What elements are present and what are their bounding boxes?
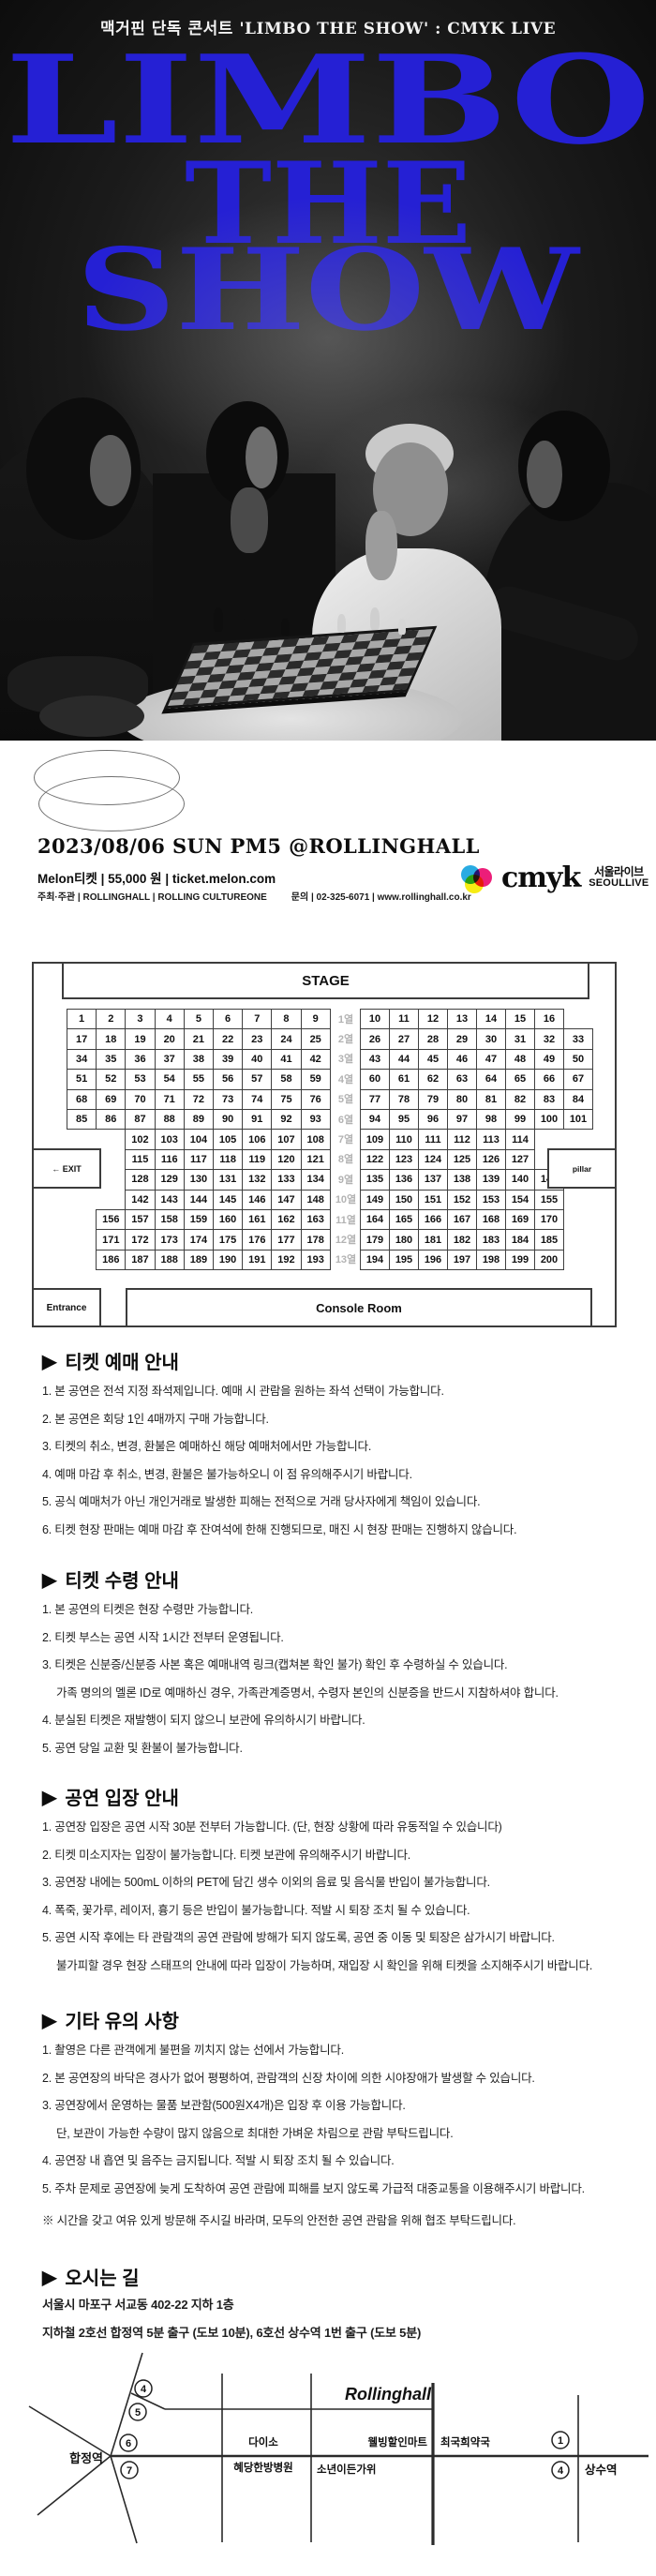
organizer-contact: 문의 | 02-325-6071 | www.rollinghall.co.kr [291, 889, 471, 903]
seat-83: 83 [534, 1089, 564, 1110]
seat-9: 9 [301, 1009, 331, 1029]
seat-19: 19 [125, 1028, 155, 1049]
section-line: 1. 공연장 입장은 공연 시작 30분 전부터 가능합니다. (단, 현장 상… [42, 1817, 502, 1835]
seat-124: 124 [418, 1149, 448, 1170]
seat-150: 150 [389, 1190, 419, 1210]
seat-1: 1 [67, 1009, 97, 1029]
seat-193: 193 [301, 1250, 331, 1270]
seat-42: 42 [301, 1049, 331, 1070]
seat-175: 175 [213, 1229, 243, 1250]
seat-180: 180 [389, 1229, 419, 1250]
chess-piece [398, 619, 406, 635]
seat-155: 155 [534, 1190, 564, 1210]
seat-168: 168 [476, 1209, 506, 1230]
seat-132: 132 [242, 1169, 272, 1190]
seat-185: 185 [534, 1229, 564, 1250]
seat-75: 75 [271, 1089, 301, 1110]
section-line: 3. 공연장에서 운영하는 물품 보관함(500원X4개)은 입장 후 이용 가… [42, 2095, 406, 2113]
seat-171: 171 [96, 1229, 126, 1250]
sangsu-exit-1-label: 1 [558, 2435, 563, 2447]
seat-146: 146 [242, 1190, 272, 1210]
section-line: 5. 공식 예매처가 아닌 개인거래로 발생한 피해는 전적으로 거래 당사자에… [42, 1491, 480, 1509]
cmyk-logo-text: cmyk [501, 864, 580, 892]
seat-27: 27 [389, 1028, 419, 1049]
seat-140: 140 [505, 1169, 535, 1190]
seat-172: 172 [125, 1229, 155, 1250]
seat-138: 138 [447, 1169, 477, 1190]
seat-92: 92 [271, 1109, 301, 1130]
seat-64: 64 [476, 1069, 506, 1089]
section-title: 티켓 수령 안내 [65, 1571, 179, 1592]
seat-22: 22 [213, 1028, 243, 1049]
row-label-5: 5열 [330, 1089, 362, 1109]
seat-130: 130 [184, 1169, 214, 1190]
seat-53: 53 [125, 1069, 155, 1089]
seat-115: 115 [125, 1149, 155, 1170]
section-line: 6. 티켓 현장 판매는 예매 마감 후 잔여석에 한해 진행되므로, 매진 시… [42, 1520, 516, 1537]
seat-44: 44 [389, 1049, 419, 1070]
row-label-10: 10열 [330, 1190, 362, 1209]
seat-154: 154 [505, 1190, 535, 1210]
seat-80: 80 [447, 1089, 477, 1110]
section-line: 2. 티켓 부스는 공연 시작 1시간 전부터 운영됩니다. [42, 1627, 284, 1645]
seat-36: 36 [125, 1049, 155, 1070]
seat-182: 182 [447, 1229, 477, 1250]
seat-186: 186 [96, 1250, 126, 1270]
seat-144: 144 [184, 1190, 214, 1210]
row-label-12: 12열 [330, 1229, 362, 1249]
band-member-2-hand [231, 487, 268, 553]
seat-56: 56 [213, 1069, 243, 1089]
seat-33: 33 [563, 1028, 593, 1049]
band-member-1-hand [39, 696, 144, 737]
seat-37: 37 [155, 1049, 185, 1070]
seat-156: 156 [96, 1209, 126, 1230]
seat-174: 174 [184, 1229, 214, 1250]
section-line: 3. 공연장 내에는 500mL 이하의 PET에 담긴 생수 이외의 음료 및… [42, 1872, 490, 1890]
triangle-bullet-icon: ▶ [42, 1568, 56, 1592]
seat-152: 152 [447, 1190, 477, 1210]
seat-10: 10 [360, 1009, 390, 1029]
seat-86: 86 [96, 1109, 126, 1130]
chess-piece [281, 619, 290, 636]
seat-129: 129 [155, 1169, 185, 1190]
seat-98: 98 [476, 1109, 506, 1130]
cmyk-circles-icon [461, 862, 493, 893]
seat-162: 162 [271, 1209, 301, 1230]
seat-163: 163 [301, 1209, 331, 1230]
seat-26: 26 [360, 1028, 390, 1049]
seat-61: 61 [389, 1069, 419, 1089]
seat-35: 35 [96, 1049, 126, 1070]
section-title: 기타 유의 사항 [65, 2012, 179, 2032]
seat-109: 109 [360, 1129, 390, 1149]
seat-52: 52 [96, 1069, 126, 1089]
seat-164: 164 [360, 1209, 390, 1230]
exit-5-label: 5 [135, 2407, 141, 2419]
seat-41: 41 [271, 1049, 301, 1070]
seat-165: 165 [389, 1209, 419, 1230]
event-date-venue: 2023/08/06 SUN PM5 @ROLLINGHALL [37, 834, 480, 858]
seat-3: 3 [125, 1009, 155, 1029]
seat-57: 57 [242, 1069, 272, 1089]
barbershop-label: 소년이든가위 [317, 2463, 376, 2476]
seat-77: 77 [360, 1089, 390, 1110]
triangle-bullet-icon: ▶ [42, 2266, 56, 2289]
section-heading: ▶공연 입장 안내 [42, 1783, 179, 1810]
seat-46: 46 [447, 1049, 477, 1070]
seat-18: 18 [96, 1028, 126, 1049]
seat-65: 65 [505, 1069, 535, 1089]
row-label-8: 8열 [330, 1149, 362, 1169]
daiso-label: 다이소 [248, 2435, 278, 2449]
seat-178: 178 [301, 1229, 331, 1250]
hapjeong-station-label: 합정역 [69, 2451, 103, 2465]
seat-58: 58 [271, 1069, 301, 1089]
seat-169: 169 [505, 1209, 535, 1230]
seat-71: 71 [155, 1089, 185, 1110]
section-line: 가족 명의의 멜론 ID로 예매하신 경우, 가족관계증명서, 수령자 본인의 … [56, 1683, 559, 1700]
diagonal-road-upleft [29, 2406, 111, 2456]
seat-82: 82 [505, 1089, 535, 1110]
seat-2: 2 [96, 1009, 126, 1029]
seat-167: 167 [447, 1209, 477, 1230]
seat-143: 143 [155, 1190, 185, 1210]
seat-139: 139 [476, 1169, 506, 1190]
exit-4-label: 4 [141, 2384, 147, 2395]
seat-151: 151 [418, 1190, 448, 1210]
section-line: 4. 예매 마감 후 취소, 변경, 환불은 불가능하오니 이 점 유의해주시기… [42, 1464, 412, 1482]
sangsu-station-label: 상수역 [585, 2463, 618, 2477]
seat-159: 159 [184, 1209, 214, 1230]
seat-8: 8 [271, 1009, 301, 1029]
sangsu-exit-4-label: 4 [558, 2465, 564, 2477]
triangle-bullet-icon: ▶ [42, 2009, 56, 2032]
seat-95: 95 [389, 1109, 419, 1130]
seat-11: 11 [389, 1009, 419, 1029]
venue-address: 서울시 마포구 서교동 402-22 지하 1층 [42, 2295, 234, 2313]
seat-122: 122 [360, 1149, 390, 1170]
seat-179: 179 [360, 1229, 390, 1250]
section-title: 티켓 예매 안내 [65, 1353, 179, 1373]
console-room-box: Console Room [126, 1288, 592, 1327]
final-notice: ※ 시간을 갖고 여유 있게 방문해 주시길 바라며, 모두의 안전한 공연 관… [42, 2210, 515, 2228]
seat-147: 147 [271, 1190, 301, 1210]
chess-piece [370, 607, 380, 630]
seat-120: 120 [271, 1149, 301, 1170]
seat-191: 191 [242, 1250, 272, 1270]
seat-13: 13 [447, 1009, 477, 1029]
seat-62: 62 [418, 1069, 448, 1089]
seat-133: 133 [271, 1169, 301, 1190]
hyedang-clinic-label: 혜당한방병원 [233, 2461, 292, 2474]
band-member-2-face [246, 427, 277, 488]
seat-14: 14 [476, 1009, 506, 1029]
section-line: 4. 폭죽, 꽃가루, 레이저, 흉기 등은 반입이 불가능합니다. 적발 시 … [42, 1900, 470, 1918]
seat-111: 111 [418, 1129, 448, 1149]
seat-24: 24 [271, 1028, 301, 1049]
seat-49: 49 [534, 1049, 564, 1070]
seat-59: 59 [301, 1069, 331, 1089]
seat-91: 91 [242, 1109, 272, 1130]
seat-6: 6 [213, 1009, 243, 1029]
seat-119: 119 [242, 1149, 272, 1170]
seat-192: 192 [271, 1250, 301, 1270]
exit-6-label: 6 [126, 2438, 131, 2449]
row-label-4: 4열 [330, 1069, 362, 1088]
seat-148: 148 [301, 1190, 331, 1210]
section-line: 5. 주차 문제로 공연장에 늦게 도착하여 공연 관람에 피해를 보지 않도록… [42, 2179, 585, 2196]
seat-110: 110 [389, 1129, 419, 1149]
seat-29: 29 [447, 1028, 477, 1049]
seat-127: 127 [505, 1149, 535, 1170]
seat-85: 85 [67, 1109, 97, 1130]
seat-190: 190 [213, 1250, 243, 1270]
yellow-circle-icon [465, 875, 484, 893]
seat-100: 100 [534, 1109, 564, 1130]
band-member-4-face [527, 441, 562, 508]
exit-7-label: 7 [127, 2465, 132, 2477]
seat-16: 16 [534, 1009, 564, 1029]
seat-106: 106 [242, 1129, 272, 1149]
seat-88: 88 [155, 1109, 185, 1130]
seat-161: 161 [242, 1209, 272, 1230]
venue-label: Rollinghall [345, 2385, 432, 2404]
section-line: 1. 본 공연은 전석 지정 좌석제입니다. 예매 시 관람을 원하는 좌석 선… [42, 1381, 444, 1399]
seat-7: 7 [242, 1009, 272, 1029]
seat-104: 104 [184, 1129, 214, 1149]
seat-117: 117 [184, 1149, 214, 1170]
section-heading: ▶기타 유의 사항 [42, 2006, 179, 2033]
seat-32: 32 [534, 1028, 564, 1049]
seat-189: 189 [184, 1250, 214, 1270]
seat-72: 72 [184, 1089, 214, 1110]
organizer-left: 주최·주관 | ROLLINGHALL | ROLLING CULTUREONE [37, 889, 267, 903]
seat-113: 113 [476, 1129, 506, 1149]
row-label-7: 7열 [330, 1129, 362, 1148]
section-line: 5. 공연 시작 후에는 타 관람객의 공연 관람에 방해가 되지 않도록, 공… [42, 1927, 555, 1945]
seat-66: 66 [534, 1069, 564, 1089]
seat-12: 12 [418, 1009, 448, 1029]
section-line: 4. 분실된 티켓은 재발행이 되지 않으니 보관에 유의하시기 바랍니다. [42, 1710, 365, 1728]
band-member-1-face [90, 435, 131, 506]
seat-134: 134 [301, 1169, 331, 1190]
seat-25: 25 [301, 1028, 331, 1049]
seat-55: 55 [184, 1069, 214, 1089]
row-label-6: 6열 [330, 1109, 362, 1129]
seat-73: 73 [213, 1089, 243, 1110]
seat-125: 125 [447, 1149, 477, 1170]
stage-box: STAGE [62, 964, 589, 999]
seat-145: 145 [213, 1190, 243, 1210]
section-line: 불가피할 경우 현장 스태프의 안내에 따라 입장이 가능하며, 재입장 시 확… [56, 1955, 592, 1973]
seat-181: 181 [418, 1229, 448, 1250]
exit-box: ← EXIT [32, 1148, 101, 1189]
section-line: 2. 본 공연은 회당 1인 4매까지 구매 가능합니다. [42, 1409, 269, 1427]
partner-logos: cmyk 서울라이브 SEOULLIVE [461, 862, 649, 893]
section-line: 단, 보관이 가능한 수량이 많지 않음으로 최대한 가벼운 차림으로 관람 부… [56, 2123, 453, 2141]
seat-67: 67 [563, 1069, 593, 1089]
seat-135: 135 [360, 1169, 390, 1190]
hero-section: 맥거핀 단독 콘서트 'LIMBO THE SHOW' : CMYK LIVE … [0, 0, 656, 741]
seat-102: 102 [125, 1129, 155, 1149]
seat-51: 51 [67, 1069, 97, 1089]
seat-99: 99 [505, 1109, 535, 1130]
seat-187: 187 [125, 1250, 155, 1270]
seoullive-logo: 서울라이브 SEOULLIVE [589, 866, 649, 889]
row-label-13: 13열 [330, 1250, 362, 1269]
chess-piece [337, 614, 346, 633]
seat-183: 183 [476, 1229, 506, 1250]
seat-81: 81 [476, 1089, 506, 1110]
seat-21: 21 [184, 1028, 214, 1049]
seat-74: 74 [242, 1089, 272, 1110]
seat-136: 136 [389, 1169, 419, 1190]
section-line: 2. 티켓 미소지자는 입장이 불가능합니다. 티켓 보관에 유의해주시기 바랍… [42, 1845, 410, 1863]
seat-84: 84 [563, 1089, 593, 1110]
seat-114: 114 [505, 1129, 535, 1149]
seat-116: 116 [155, 1149, 185, 1170]
seat-94: 94 [360, 1109, 390, 1130]
seoullive-english: SEOULLIVE [589, 878, 649, 890]
seat-166: 166 [418, 1209, 448, 1230]
subway-directions: 지하철 2호선 합정역 5분 출구 (도보 10분), 6호선 상수역 1번 출… [42, 2323, 421, 2341]
seat-105: 105 [213, 1129, 243, 1149]
seat-34: 34 [67, 1049, 97, 1070]
chess-piece [214, 607, 223, 632]
section-heading: ▶티켓 예매 안내 [42, 1347, 179, 1374]
seat-45: 45 [418, 1049, 448, 1070]
seat-31: 31 [505, 1028, 535, 1049]
seat-70: 70 [125, 1089, 155, 1110]
seat-96: 96 [418, 1109, 448, 1130]
seat-153: 153 [476, 1190, 506, 1210]
section-line: 1. 본 공연의 티켓은 현장 수령만 가능합니다. [42, 1599, 253, 1617]
seat-184: 184 [505, 1229, 535, 1250]
poster-page: 맥거핀 단독 콘서트 'LIMBO THE SHOW' : CMYK LIVE … [0, 0, 656, 2576]
seat-123: 123 [389, 1149, 419, 1170]
seat-76: 76 [301, 1089, 331, 1110]
seat-173: 173 [155, 1229, 185, 1250]
entrance-box: Entrance [32, 1288, 101, 1327]
seat-68: 68 [67, 1089, 97, 1110]
seat-89: 89 [184, 1109, 214, 1130]
seat-157: 157 [125, 1209, 155, 1230]
seat-121: 121 [301, 1149, 331, 1170]
seat-112: 112 [447, 1129, 477, 1149]
row-label-9: 9열 [330, 1169, 362, 1189]
pillar-box: pillar [547, 1148, 617, 1189]
seat-131: 131 [213, 1169, 243, 1190]
seat-78: 78 [389, 1089, 419, 1110]
seat-200: 200 [534, 1250, 564, 1270]
seat-188: 188 [155, 1250, 185, 1270]
seat-177: 177 [271, 1229, 301, 1250]
seat-197: 197 [447, 1250, 477, 1270]
seat-126: 126 [476, 1149, 506, 1170]
seat-101: 101 [563, 1109, 593, 1130]
directions-heading: ▶오시는 길 [42, 2263, 140, 2290]
row-label-3: 3열 [330, 1049, 362, 1069]
seat-107: 107 [271, 1129, 301, 1149]
seat-176: 176 [242, 1229, 272, 1250]
section-title: 공연 입장 안내 [65, 1789, 179, 1809]
section-line: 3. 티켓의 취소, 변경, 환불은 예매하신 해당 예매처에서만 가능합니다. [42, 1436, 371, 1454]
row-label-2: 2열 [330, 1028, 362, 1048]
seat-38: 38 [184, 1049, 214, 1070]
seat-23: 23 [242, 1028, 272, 1049]
seat-28: 28 [418, 1028, 448, 1049]
seat-20: 20 [155, 1028, 185, 1049]
seat-48: 48 [505, 1049, 535, 1070]
seat-30: 30 [476, 1028, 506, 1049]
seat-108: 108 [301, 1129, 331, 1149]
seat-54: 54 [155, 1069, 185, 1089]
section-heading: ▶티켓 수령 안내 [42, 1565, 179, 1593]
row-label-11: 11열 [330, 1209, 362, 1229]
seat-90: 90 [213, 1109, 243, 1130]
seat-160: 160 [213, 1209, 243, 1230]
section-line: 2. 본 공연장의 바닥은 경사가 없어 평평하여, 관람객의 신장 차이에 의… [42, 2068, 535, 2086]
seat-79: 79 [418, 1089, 448, 1110]
triangle-bullet-icon: ▶ [42, 1350, 56, 1373]
chess-piece [236, 615, 245, 634]
wellbeing-mart-label: 웰빙할인마트 [368, 2435, 428, 2449]
info-band: 2023/08/06 SUN PM5 @ROLLINGHALL Melon티켓 … [0, 741, 656, 962]
seat-149: 149 [360, 1190, 390, 1210]
seat-137: 137 [418, 1169, 448, 1190]
seat-128: 128 [125, 1169, 155, 1190]
seat-39: 39 [213, 1049, 243, 1070]
seat-198: 198 [476, 1250, 506, 1270]
section-line: 3. 티켓은 신분증/신분증 사본 혹은 예매내역 링크(캡쳐본 확인 불가) … [42, 1655, 507, 1672]
pharmacy-label: 최국희약국 [440, 2435, 490, 2449]
seat-196: 196 [418, 1250, 448, 1270]
seat-47: 47 [476, 1049, 506, 1070]
seat-118: 118 [213, 1149, 243, 1170]
seat-93: 93 [301, 1109, 331, 1130]
seat-15: 15 [505, 1009, 535, 1029]
organizer-line: 주최·주관 | ROLLINGHALL | ROLLING CULTUREONE… [37, 889, 471, 903]
section-line: 4. 공연장 내 흡연 및 음주는 금지됩니다. 적발 시 퇴장 조치 될 수 … [42, 2150, 395, 2168]
seat-194: 194 [360, 1250, 390, 1270]
section-line: 1. 촬영은 다른 관객에게 불편을 끼치지 않는 선에서 가능합니다. [42, 2040, 344, 2058]
seat-103: 103 [155, 1129, 185, 1149]
seat-87: 87 [125, 1109, 155, 1130]
seat-4: 4 [155, 1009, 185, 1029]
seat-142: 142 [125, 1190, 155, 1210]
seat-5: 5 [184, 1009, 214, 1029]
location-map: Rollinghall 4 5 6 7 1 4 합정역 다이소 혜당한방병원 소… [0, 2348, 656, 2576]
seat-43: 43 [360, 1049, 390, 1070]
seat-50: 50 [563, 1049, 593, 1070]
ticket-price-line: Melon티켓 | 55,000 원 | ticket.melon.com [37, 868, 276, 887]
seat-63: 63 [447, 1069, 477, 1089]
seating-chart: STAGE 1234567891열10111213141516171819202… [32, 962, 617, 1327]
triangle-bullet-icon: ▶ [42, 1786, 56, 1809]
row-label-1: 1열 [330, 1009, 362, 1028]
seat-60: 60 [360, 1069, 390, 1089]
seat-170: 170 [534, 1209, 564, 1230]
seat-158: 158 [155, 1209, 185, 1230]
ellipse-logo [38, 776, 185, 831]
seat-17: 17 [67, 1028, 97, 1049]
section-line: 5. 공연 당일 교환 및 환불이 불가능합니다. [42, 1738, 243, 1756]
seat-195: 195 [389, 1250, 419, 1270]
seat-199: 199 [505, 1250, 535, 1270]
seat-40: 40 [242, 1049, 272, 1070]
seat-97: 97 [447, 1109, 477, 1130]
